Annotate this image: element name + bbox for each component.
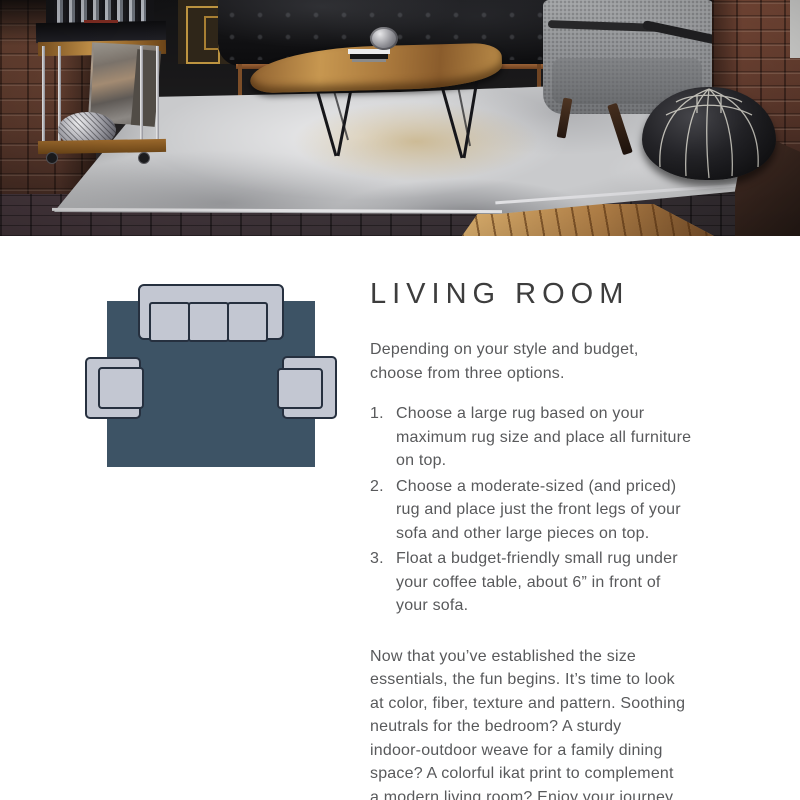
diagram-sofa-cushion bbox=[227, 302, 268, 342]
list-item-number: 1. bbox=[370, 402, 396, 473]
diagram-sofa-cushions bbox=[149, 302, 279, 342]
window-sliver bbox=[790, 0, 800, 58]
diagram-sofa-cushion bbox=[188, 302, 229, 342]
cart-chrome-post bbox=[140, 46, 143, 152]
page: LIVING ROOM Depending on your style and … bbox=[0, 0, 800, 800]
hero-photo bbox=[0, 0, 800, 236]
list-item-text: Choose a large rug based on your maximum… bbox=[396, 402, 691, 473]
pouf-stitching bbox=[642, 87, 776, 180]
knot-sculpture bbox=[370, 27, 398, 50]
list-item-text: Choose a moderate-sized (and priced) rug… bbox=[396, 475, 681, 546]
intro-paragraph: Depending on your style and budget, choo… bbox=[370, 338, 784, 385]
diagram-armchair-right-seat bbox=[277, 368, 323, 409]
outro-paragraph: Now that you’ve established the size ess… bbox=[370, 645, 784, 800]
list-item: 3. Float a budget-friendly small rug und… bbox=[370, 547, 784, 618]
cart-chrome-post bbox=[156, 46, 159, 152]
options-list: 1. Choose a large rug based on your maxi… bbox=[370, 402, 784, 618]
rug-layout-diagram bbox=[0, 236, 360, 516]
content-area: LIVING ROOM Depending on your style and … bbox=[0, 236, 800, 800]
cart-chrome-post bbox=[42, 46, 45, 152]
list-item-number: 3. bbox=[370, 547, 396, 618]
cart-red-accent bbox=[84, 20, 118, 23]
cart-wheel bbox=[46, 152, 58, 164]
article: LIVING ROOM Depending on your style and … bbox=[370, 236, 784, 800]
list-item: 1. Choose a large rug based on your maxi… bbox=[370, 402, 784, 473]
book bbox=[352, 59, 386, 62]
list-item-number: 2. bbox=[370, 475, 396, 546]
cart-wheel bbox=[138, 152, 150, 164]
page-title: LIVING ROOM bbox=[370, 280, 784, 309]
list-item-text: Float a budget-friendly small rug under … bbox=[396, 547, 678, 618]
diagram-armchair-left-seat bbox=[98, 367, 144, 409]
diagram-sofa-cushion bbox=[149, 302, 190, 342]
list-item: 2. Choose a moderate-sized (and priced) … bbox=[370, 475, 784, 546]
